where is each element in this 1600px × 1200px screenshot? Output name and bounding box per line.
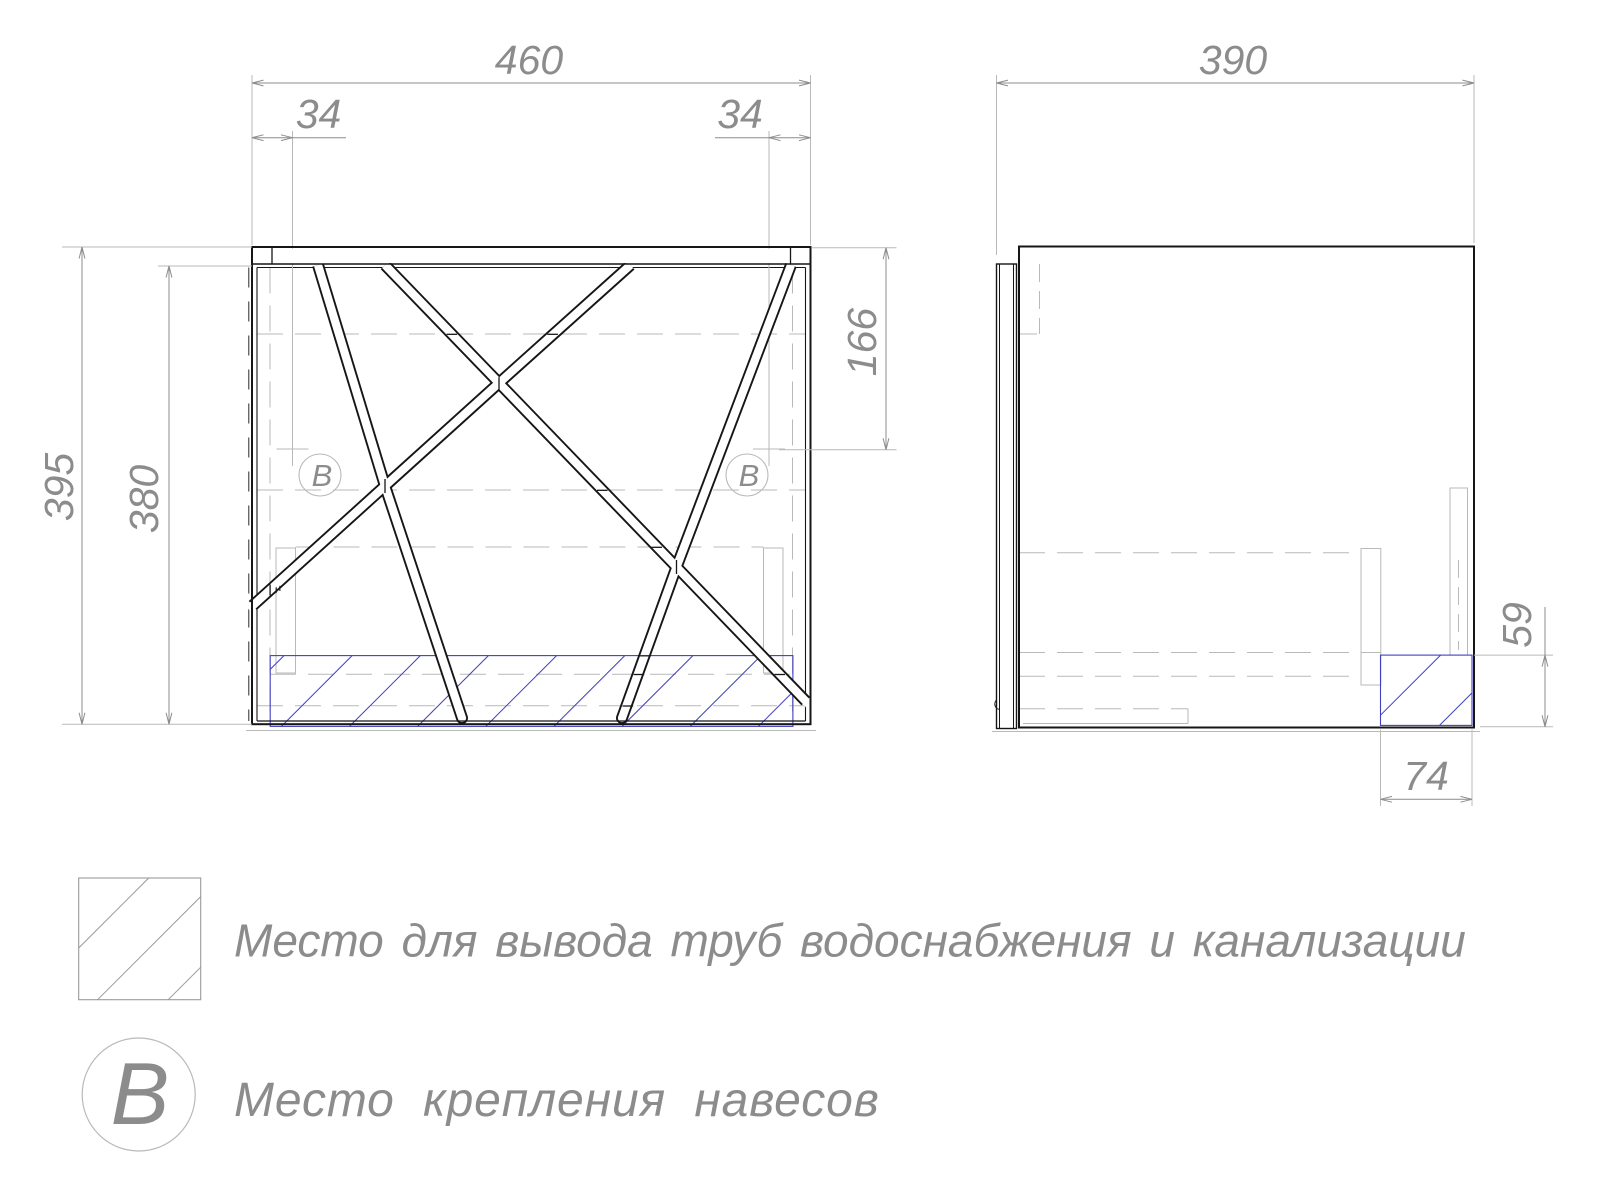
svg-text:460: 460 xyxy=(495,37,564,83)
svg-text:34: 34 xyxy=(717,91,763,137)
svg-text:Место крепления навесов: Место крепления навесов xyxy=(234,1074,880,1127)
svg-text:380: 380 xyxy=(121,465,167,534)
svg-text:B: B xyxy=(111,1044,170,1143)
svg-text:74: 74 xyxy=(1403,753,1449,799)
svg-text:390: 390 xyxy=(1199,37,1268,83)
svg-text:34: 34 xyxy=(296,91,342,137)
svg-text:B: B xyxy=(739,458,760,493)
svg-text:B: B xyxy=(312,458,333,493)
svg-text:59: 59 xyxy=(1494,602,1540,648)
svg-text:166: 166 xyxy=(839,308,885,377)
svg-text:395: 395 xyxy=(36,453,82,522)
svg-text:Место для вывода труб водоснаб: Место для вывода труб водоснабжения и ка… xyxy=(234,915,1466,967)
